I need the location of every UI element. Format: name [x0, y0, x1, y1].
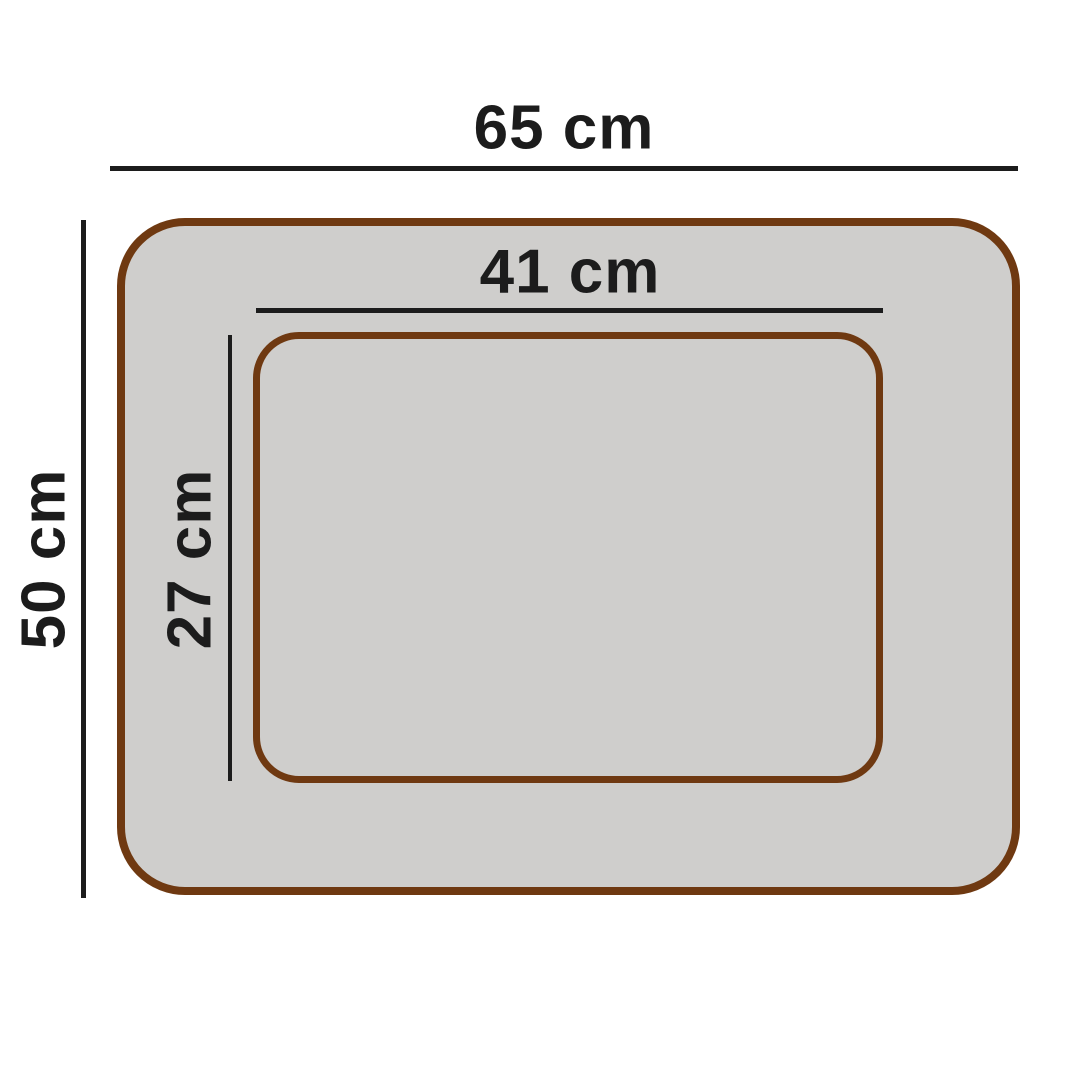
inner-width-dimension-line: [256, 308, 883, 313]
inner-height-dimension-line: [228, 335, 232, 781]
dimension-diagram: 65 cm 50 cm 41 cm 27 cm: [0, 0, 1080, 1080]
outer-width-dimension-line: [110, 166, 1018, 171]
inner-width-label: 41 cm: [480, 237, 661, 308]
inner-cushion-outline: [253, 332, 883, 783]
outer-width-label: 65 cm: [474, 93, 655, 164]
outer-height-dimension-line: [81, 220, 86, 898]
outer-height-label: 50 cm: [9, 469, 80, 650]
inner-height-label: 27 cm: [155, 469, 226, 650]
